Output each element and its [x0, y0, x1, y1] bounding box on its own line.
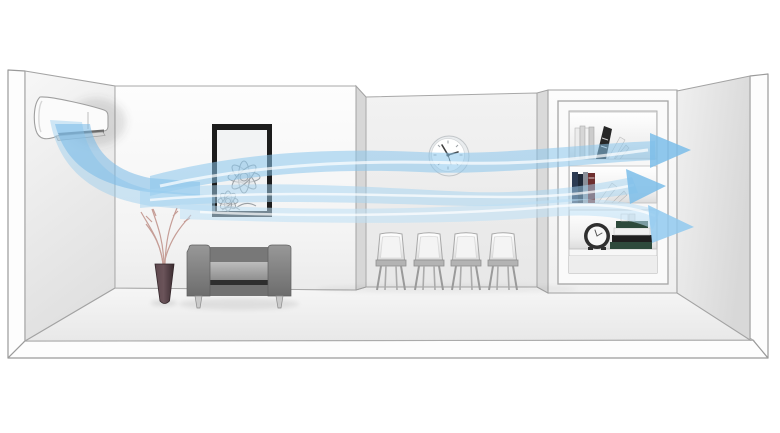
chairs-shadow	[317, 285, 577, 293]
right-wall-cut-edge	[750, 74, 768, 358]
right-wall	[677, 76, 750, 340]
illustration-stage	[0, 0, 780, 433]
left-wall-cut-edge	[8, 70, 25, 358]
sofa-armrest-right	[268, 245, 291, 296]
sofa-armrest-left	[187, 245, 210, 296]
book-green	[610, 242, 652, 249]
room-airflow-illustration	[0, 0, 780, 433]
sofa-cushion	[205, 262, 273, 280]
bookshelf-bottom-panel	[569, 256, 657, 273]
floor	[25, 287, 753, 341]
floor-cut-edge	[8, 340, 768, 358]
sofa-base	[205, 285, 273, 296]
